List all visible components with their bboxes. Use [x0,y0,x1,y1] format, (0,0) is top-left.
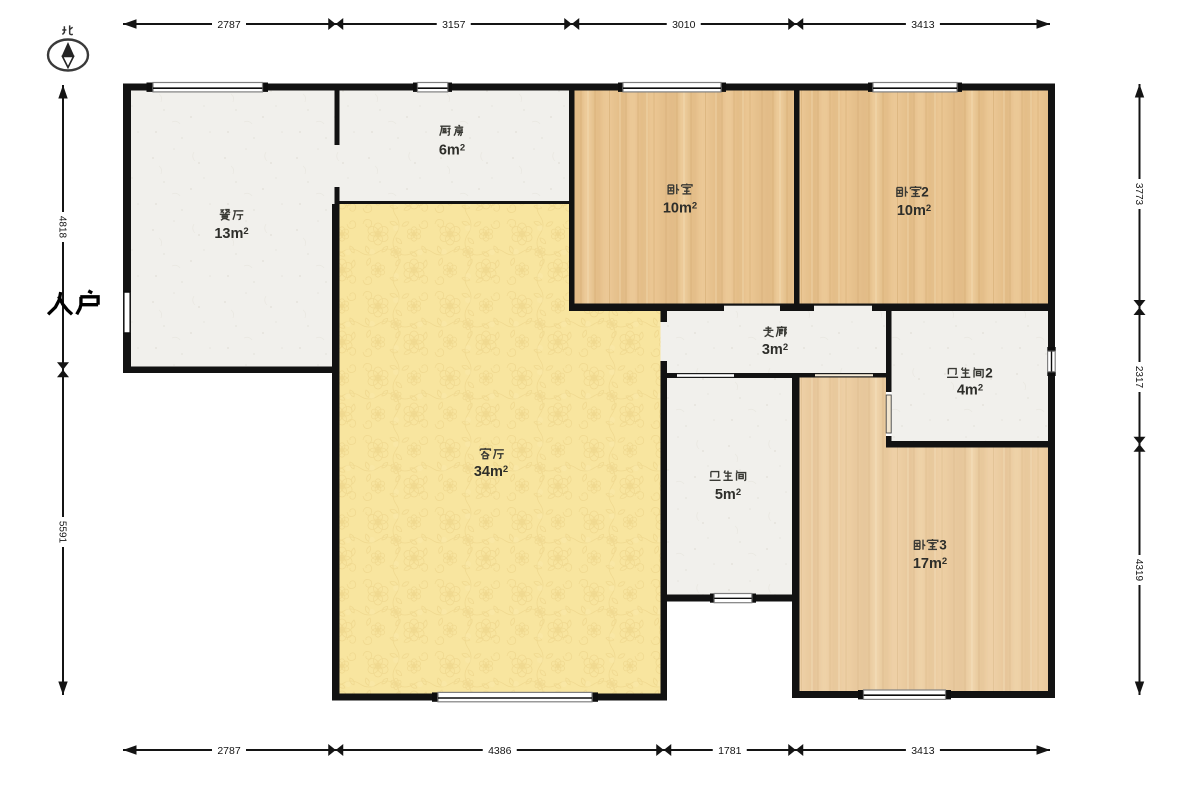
svg-text:4818: 4818 [57,216,68,239]
svg-text:4319: 4319 [1133,559,1144,582]
svg-text:2317: 2317 [1133,366,1144,389]
svg-text:3010: 3010 [672,19,696,31]
svg-text:3157: 3157 [442,19,466,31]
svg-text:3413: 3413 [911,19,935,31]
svg-text:3773: 3773 [1133,183,1144,206]
svg-text:3: 3 [939,538,947,553]
svg-text:2: 2 [985,366,993,381]
svg-text:2787: 2787 [217,19,241,31]
svg-text:1781: 1781 [718,745,742,757]
svg-text:5591: 5591 [57,521,68,544]
svg-text:4386: 4386 [488,745,512,757]
svg-text:2: 2 [921,185,929,200]
svg-text:3413: 3413 [911,745,935,757]
svg-text:2787: 2787 [217,745,241,757]
